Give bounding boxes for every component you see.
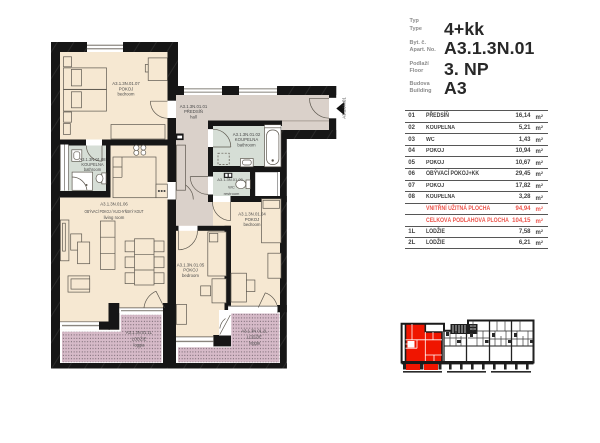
svg-text:bathroom: bathroom	[237, 142, 256, 147]
svg-text:WC: WC	[228, 185, 235, 190]
svg-text:loggia: loggia	[134, 343, 146, 348]
svg-text:bedroom: bedroom	[118, 92, 135, 97]
svg-text:LODŽIE: LODŽIE	[132, 337, 147, 342]
svg-text:A3.1.3N.01.2L: A3.1.3N.01.2L	[241, 329, 268, 334]
svg-text:hall: hall	[190, 114, 197, 119]
svg-text:loggia: loggia	[249, 340, 261, 345]
svg-text:A3.1.3N.01.06: A3.1.3N.01.06	[100, 201, 128, 206]
svg-text:OBÝVACÍ POKOJ / KUCHYŇSKÝ KOUT: OBÝVACÍ POKOJ / KUCHYŇSKÝ KOUT	[85, 209, 144, 214]
svg-text:A3.1.3N.01.1L: A3.1.3N.01.1L	[126, 330, 153, 335]
svg-text:bathroom: bathroom	[84, 167, 102, 172]
svg-text:A3.1.3N.01.03: A3.1.3N.01.03	[217, 177, 243, 182]
svg-text:bedroom: bedroom	[182, 273, 199, 278]
svg-text:LODŽIE: LODŽIE	[247, 335, 262, 340]
svg-text:living room: living room	[104, 215, 125, 220]
svg-text:restroom: restroom	[224, 191, 240, 196]
svg-text:bedroom: bedroom	[244, 222, 261, 227]
svg-text:A3.1.3N.01: A3.1.3N.01	[342, 97, 347, 119]
